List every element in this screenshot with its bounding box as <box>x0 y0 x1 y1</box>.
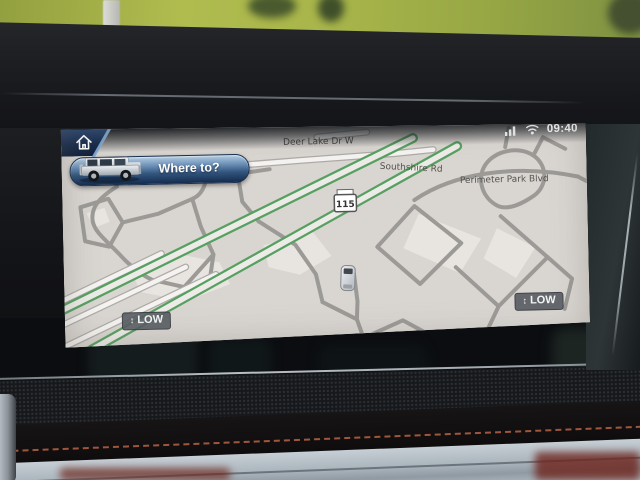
bush <box>318 0 344 22</box>
tree <box>608 0 640 34</box>
where-to-button[interactable]: Where to? <box>69 154 250 187</box>
network-signal-icon <box>505 124 518 135</box>
street-label-perimeter-park: Perimeter Park Blvd <box>460 174 549 186</box>
svg-text:115: 115 <box>336 200 355 210</box>
vent-red-accent <box>60 468 230 480</box>
route-shield: 115 <box>334 189 356 211</box>
home-icon[interactable] <box>74 132 94 154</box>
bush <box>248 0 296 18</box>
right-pillar <box>586 124 640 370</box>
passenger-temperature-button[interactable]: ↕ LOW <box>514 292 564 311</box>
vehicle-position-marker <box>341 265 356 290</box>
driver-temperature-value: LOW <box>137 314 163 327</box>
temp-updown-icon: ↕ <box>522 296 527 305</box>
where-to-label: Where to? <box>158 160 219 175</box>
driver-temperature-button[interactable]: ↕ LOW <box>122 311 172 330</box>
passenger-temperature-value: LOW <box>530 294 556 307</box>
gps-signal-icon <box>525 123 540 135</box>
infotainment-screen[interactable]: 115 Deer Lake Dr W Southshire Rd Perimet… <box>61 118 591 347</box>
clock: 09:40 <box>547 122 578 135</box>
temp-updown-icon: ↕ <box>130 316 135 325</box>
vehicle-suv-icon <box>74 152 147 186</box>
dash-highlight-line <box>0 92 585 103</box>
left-trim-edge <box>0 394 16 480</box>
pillar-highlight <box>612 153 639 357</box>
vent-red-accent <box>535 452 640 480</box>
car-dashboard-scene: 115 Deer Lake Dr W Southshire Rd Perimet… <box>0 0 640 480</box>
